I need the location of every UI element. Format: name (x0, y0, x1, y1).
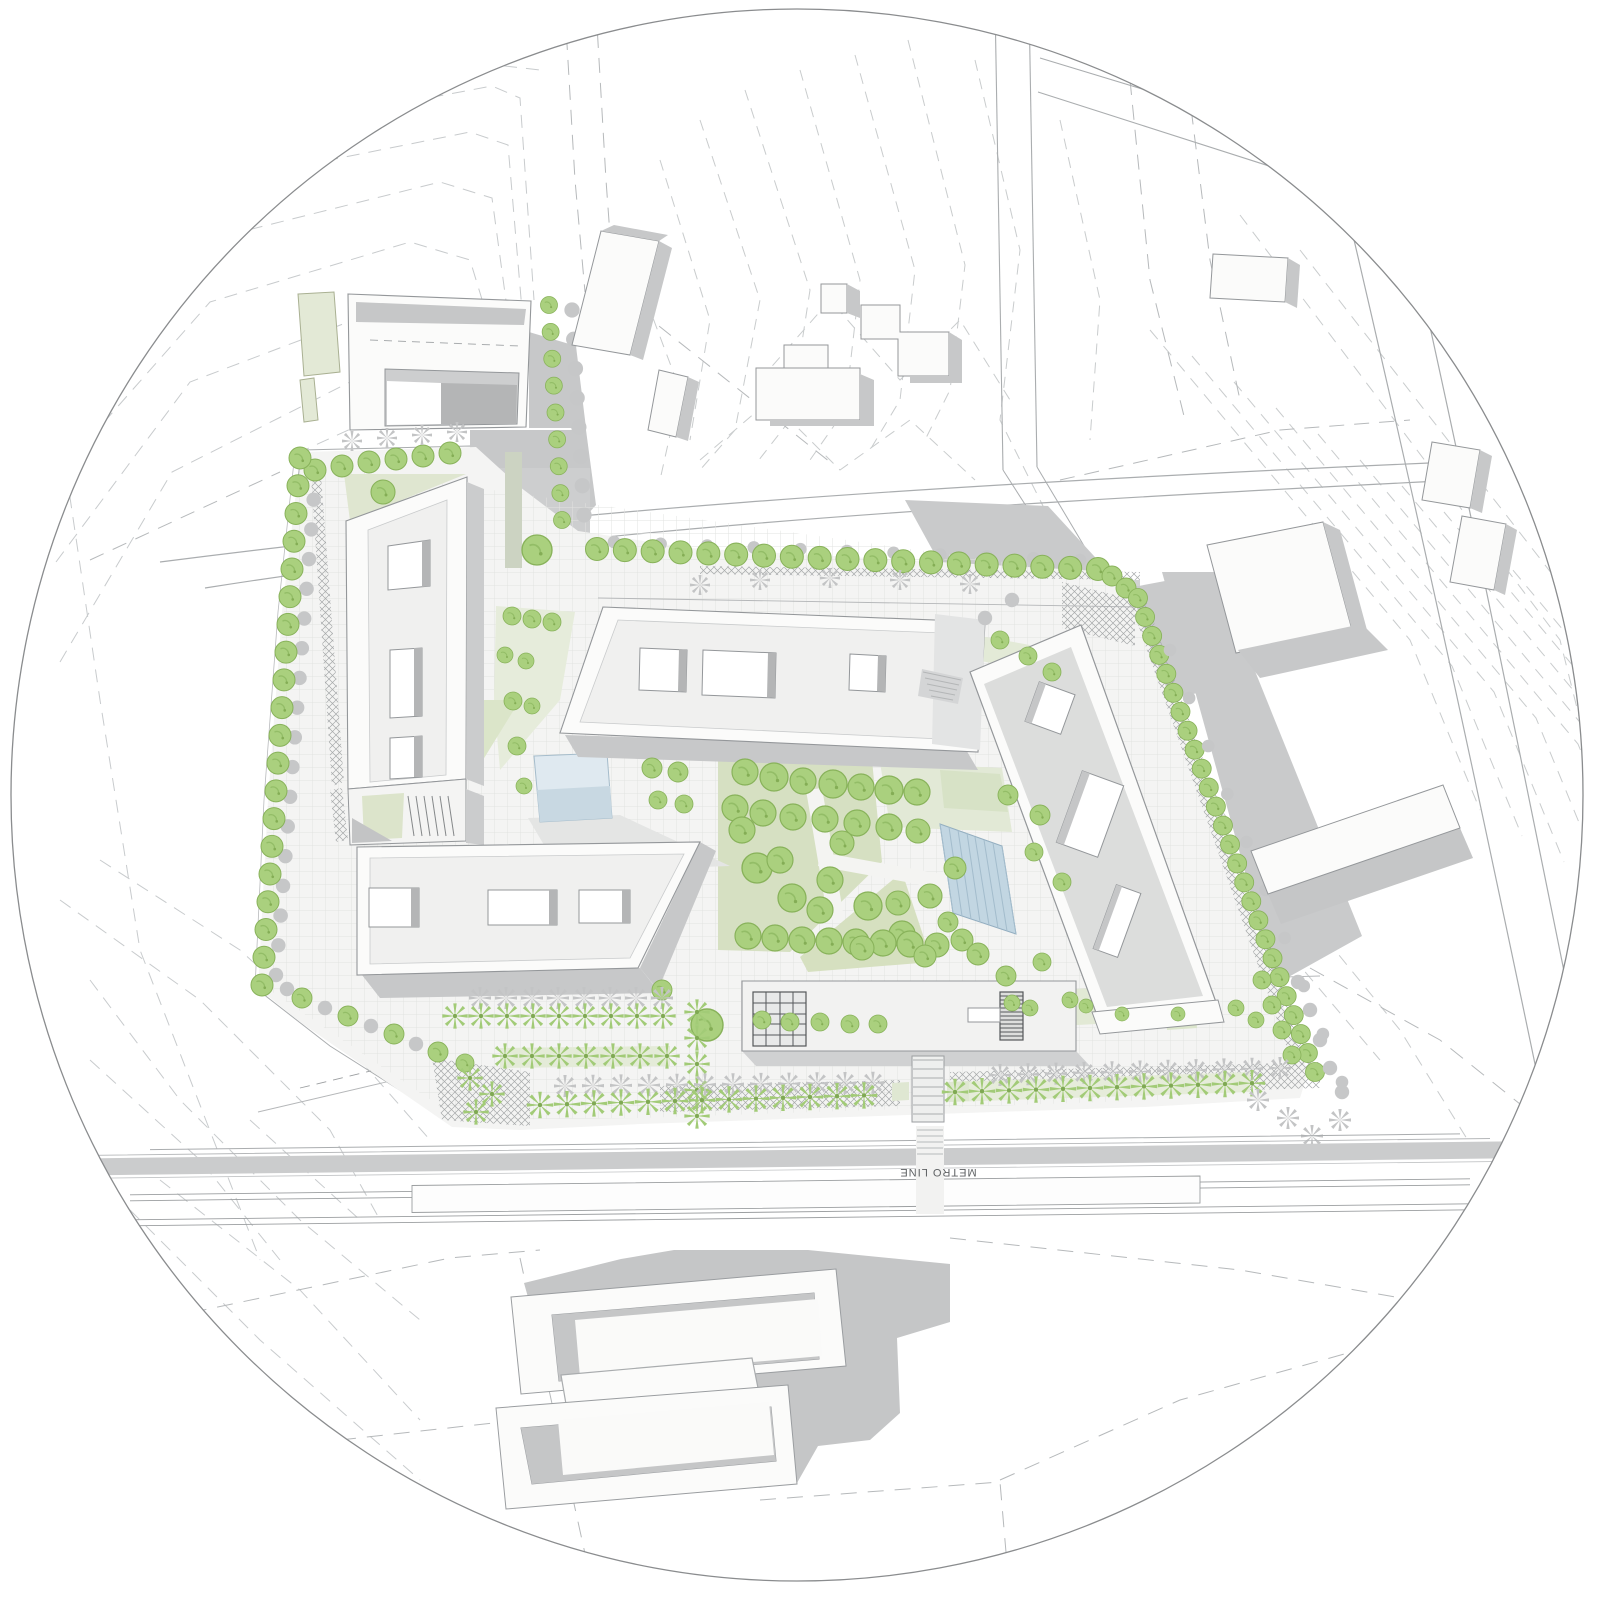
svg-text:METRO LINE: METRO LINE (899, 1166, 976, 1178)
